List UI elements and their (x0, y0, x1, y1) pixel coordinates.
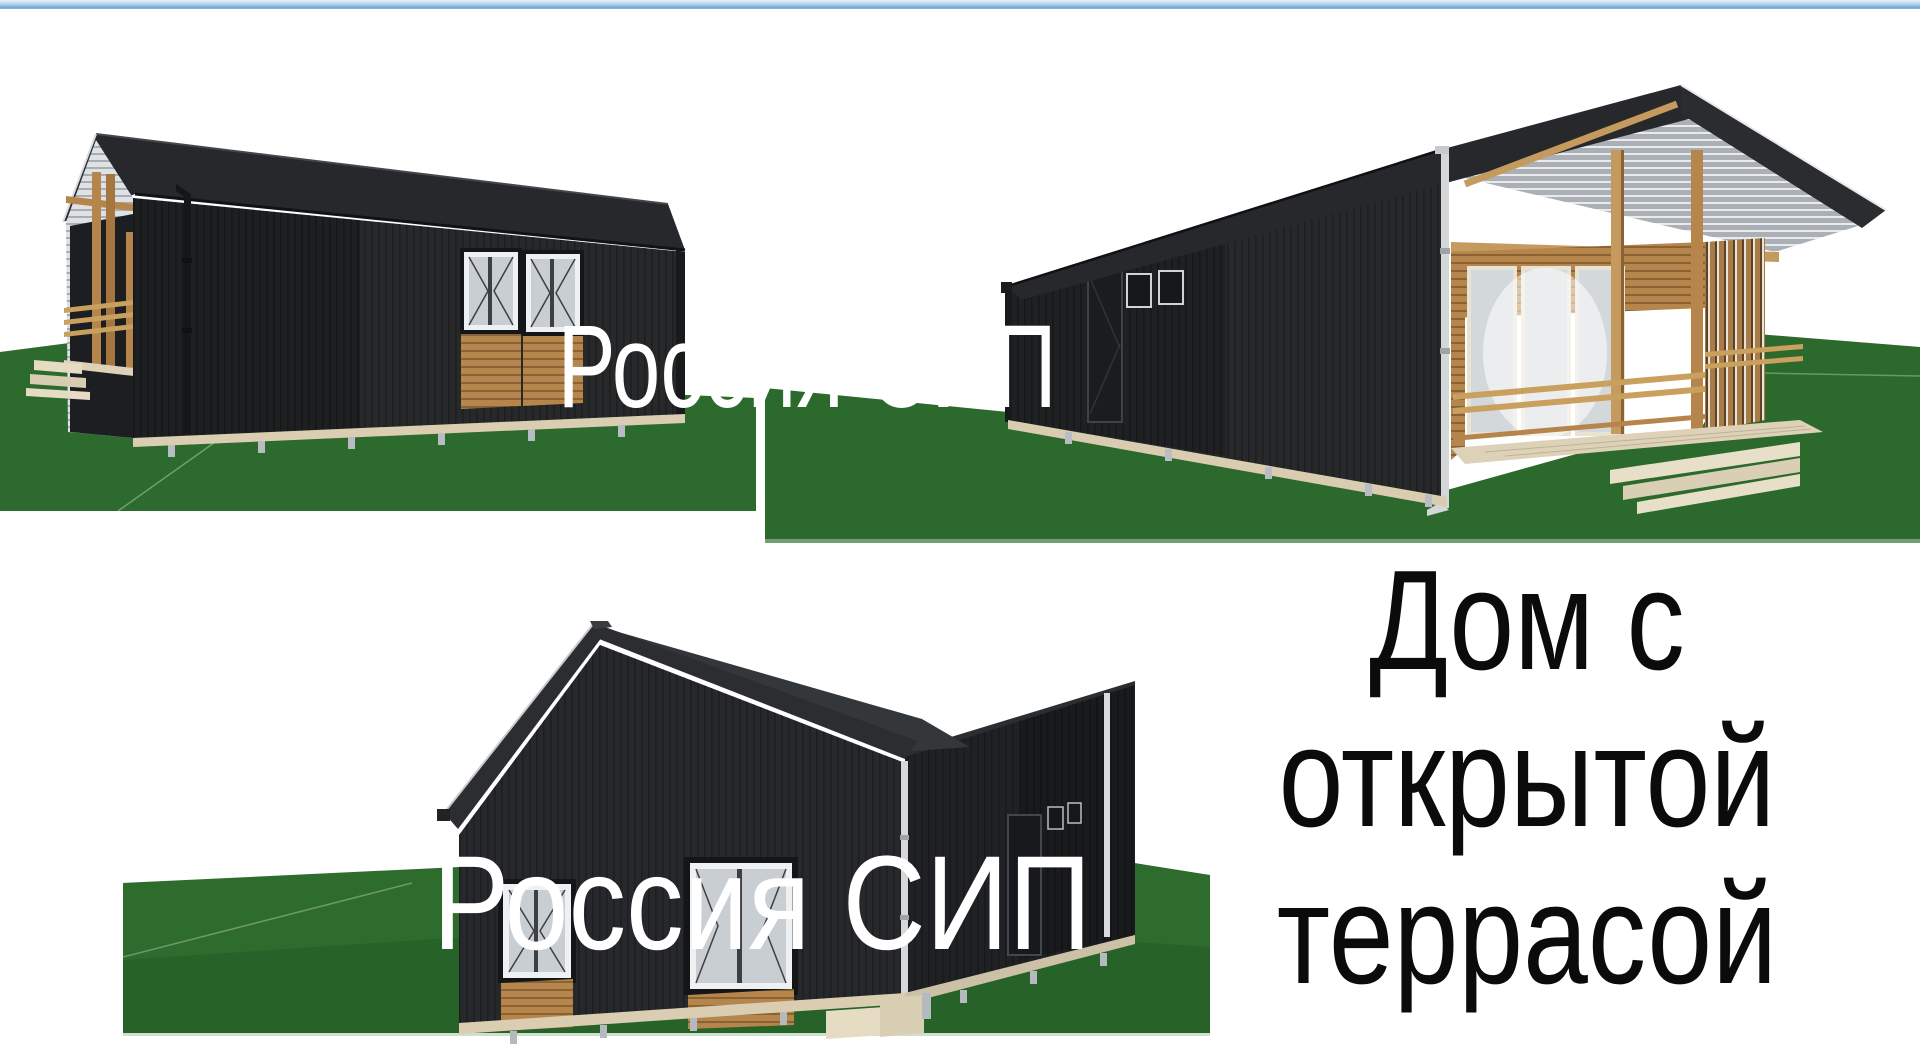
caption-line-3: террасой (1277, 856, 1777, 1013)
watermark-bottom: Россия СИП (433, 837, 1092, 971)
watermark-top: Россия СИП (557, 308, 1056, 426)
image-collage: Россия СИП Россия СИП Дом с открытой тер… (0, 0, 1920, 1050)
caption-line-1: Дом с (1277, 542, 1777, 699)
caption-line-2: открытой (1277, 699, 1777, 856)
house-render-top-left (0, 8, 756, 511)
caption-title: Дом с открытой террасой (1277, 542, 1777, 1013)
